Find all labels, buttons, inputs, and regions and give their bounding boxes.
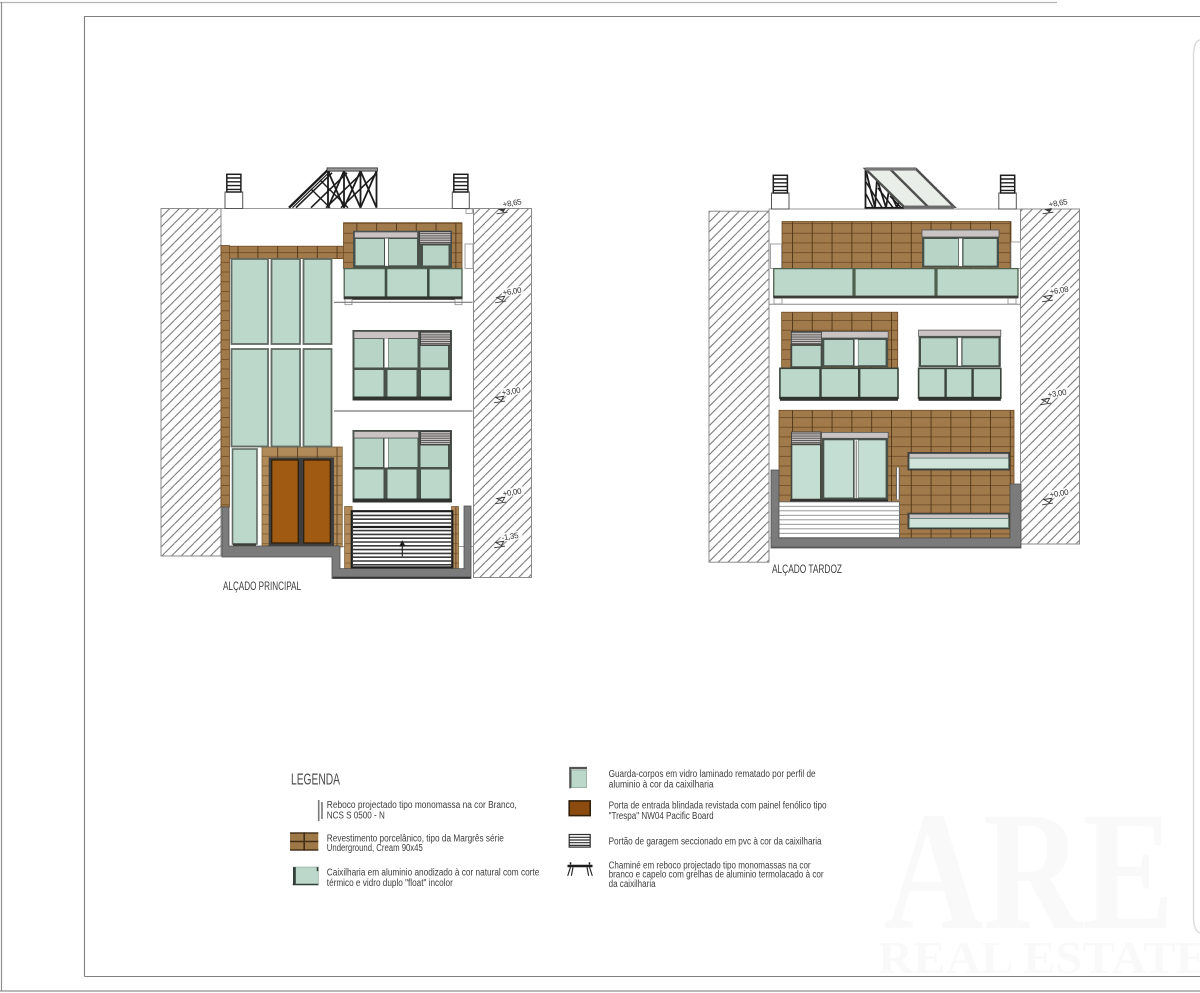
svg-text:aluminio à cor da caixilharia: aluminio à cor da caixilharia [609,780,714,791]
svg-text:Underground, Cream 90x45: Underground, Cream 90x45 [327,843,423,854]
svg-text:da caixilharia: da caixilharia [609,879,656,890]
svg-text:ALÇADO TARDOZ: ALÇADO TARDOZ [772,564,842,576]
svg-text:Porta de entrada blindada revi: Porta de entrada blindada revistada com … [609,801,827,812]
svg-text:Caixilharia em aluminio anodiz: Caixilharia em aluminio anodizado à cor … [327,867,540,878]
svg-text:ALÇADO PRINCIPAL: ALÇADO PRINCIPAL [223,581,301,593]
svg-text:Reboco projectado tipo monomas: Reboco projectado tipo monomassa na cor … [327,800,517,811]
svg-text:REAL ESTATE: REAL ESTATE [878,932,1200,983]
svg-text:LEGENDA: LEGENDA [291,772,340,789]
svg-text:térmico e vidro duplo "float": térmico e vidro duplo "float" incolor [327,878,454,889]
svg-text:Portão de garagem seccionado e: Portão de garagem seccionado em pvc à co… [609,837,822,848]
svg-text:Guarda-corpos em vidro laminad: Guarda-corpos em vidro laminado rematado… [609,769,816,780]
svg-text:"Trespa" NW04 Pacific Board: "Trespa" NW04 Pacific Board [609,811,714,822]
svg-text:NCS S 0500 - N: NCS S 0500 - N [327,811,385,822]
